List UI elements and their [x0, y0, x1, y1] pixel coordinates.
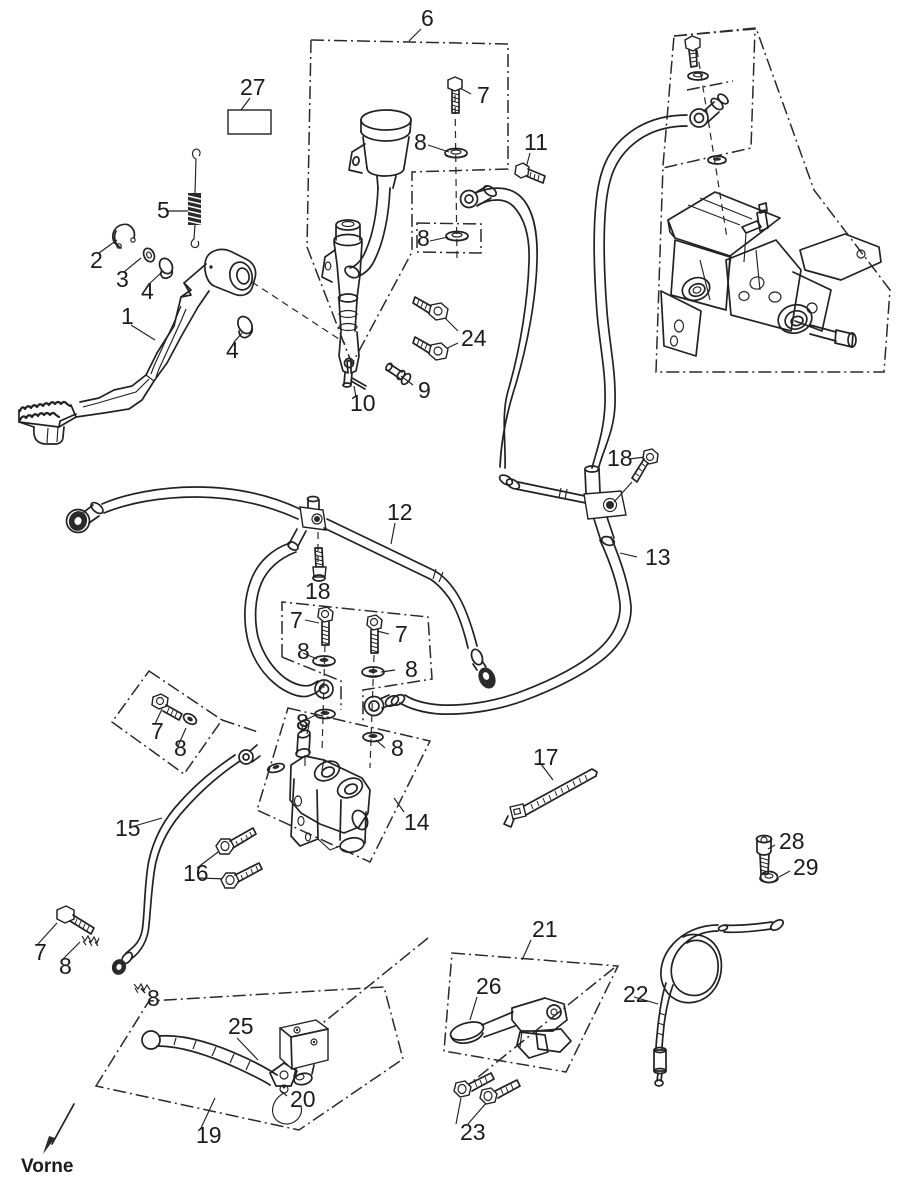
svg-text:18: 18	[607, 445, 633, 471]
svg-text:4: 4	[226, 337, 239, 363]
svg-text:8: 8	[405, 656, 418, 682]
svg-text:21: 21	[532, 916, 558, 942]
svg-text:14: 14	[404, 809, 430, 835]
svg-text:18: 18	[305, 578, 331, 604]
svg-text:Vorne: Vorne	[21, 1156, 73, 1177]
svg-text:20: 20	[290, 1086, 316, 1112]
svg-text:15: 15	[115, 815, 141, 841]
svg-text:23: 23	[460, 1119, 486, 1145]
svg-text:29: 29	[793, 854, 819, 880]
svg-text:24: 24	[461, 325, 487, 351]
svg-text:26: 26	[476, 973, 502, 999]
svg-text:17: 17	[533, 744, 559, 770]
svg-text:13: 13	[645, 544, 671, 570]
svg-text:9: 9	[418, 377, 431, 403]
svg-text:6: 6	[421, 5, 434, 31]
svg-text:2: 2	[90, 247, 103, 273]
svg-text:8: 8	[391, 735, 404, 761]
svg-text:8: 8	[297, 638, 310, 664]
svg-text:7: 7	[395, 621, 408, 647]
svg-text:8: 8	[417, 225, 430, 251]
svg-text:11: 11	[524, 129, 548, 155]
svg-text:8: 8	[414, 129, 427, 155]
svg-text:27: 27	[240, 74, 266, 100]
svg-text:8: 8	[174, 735, 187, 761]
svg-text:28: 28	[779, 828, 805, 854]
svg-text:7: 7	[477, 82, 490, 108]
svg-text:12: 12	[387, 499, 413, 525]
svg-text:7: 7	[34, 939, 47, 965]
svg-text:5: 5	[157, 197, 170, 223]
svg-text:7: 7	[290, 607, 303, 633]
svg-text:25: 25	[228, 1013, 254, 1039]
svg-text:16: 16	[183, 860, 209, 886]
svg-text:22: 22	[623, 981, 649, 1007]
svg-text:19: 19	[196, 1122, 222, 1148]
svg-text:7: 7	[151, 718, 164, 744]
svg-text:10: 10	[350, 390, 376, 416]
